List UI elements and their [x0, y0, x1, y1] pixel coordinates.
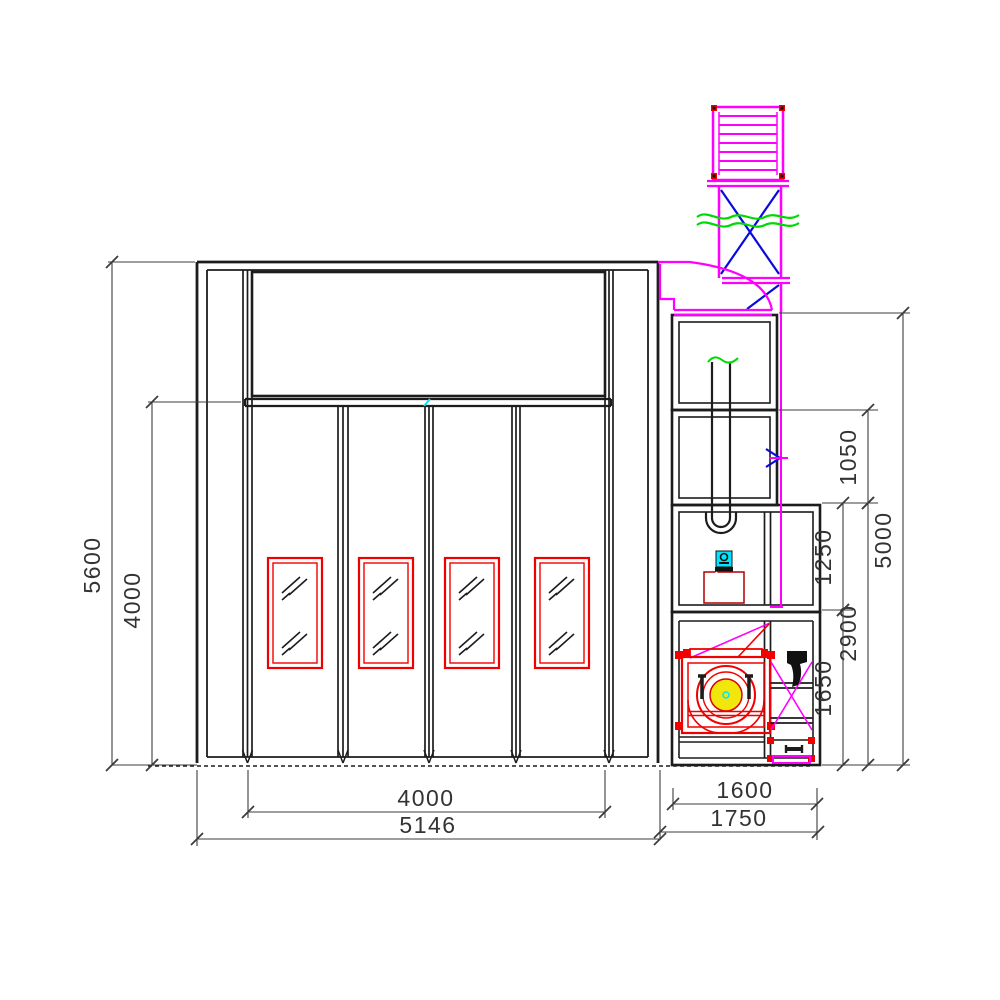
dim-lower-section: 2900	[835, 497, 874, 771]
motor-bay	[767, 651, 815, 763]
dim-burner-section: 1250	[810, 497, 849, 616]
base-strip	[773, 756, 810, 763]
transition-arc	[690, 262, 772, 310]
stack-louvers	[719, 116, 777, 170]
svg-text:4000: 4000	[397, 785, 454, 811]
header-beam	[245, 399, 611, 406]
burner-unit	[704, 551, 744, 603]
heat-exchanger-pipe	[706, 357, 738, 533]
dim-mech-room-width: 1750	[654, 805, 824, 838]
svg-text:1750: 1750	[710, 805, 767, 831]
dim-door-height: 4000	[119, 396, 158, 771]
dim-booth-width: 5146	[191, 812, 666, 845]
door-window-1	[268, 558, 322, 668]
svg-text:1250: 1250	[810, 528, 836, 585]
exhaust-duct	[697, 181, 799, 312]
spray-booth-elevation-drawing: 5600 4000 1050 1250 2900 1650	[0, 0, 1000, 1000]
duct-break-line	[697, 214, 799, 218]
drawing-canvas: 5600 4000 1050 1250 2900 1650	[0, 0, 1000, 1000]
exhaust-stack	[711, 105, 785, 180]
door-window-2	[359, 558, 413, 668]
door-window-3	[445, 558, 499, 668]
door-window-4	[535, 558, 589, 668]
fan-hub	[710, 679, 742, 711]
svg-text:1650: 1650	[810, 659, 836, 716]
svg-text:5600: 5600	[79, 536, 105, 593]
pipe-break-line	[708, 357, 738, 362]
svg-text:5146: 5146	[399, 812, 456, 838]
svg-text:5000: 5000	[870, 511, 896, 568]
machine-room	[672, 315, 820, 765]
burner-body	[704, 572, 744, 603]
dim-duct-section: 1050	[835, 404, 874, 509]
transom-panel	[252, 272, 605, 396]
door-frame-posts	[243, 270, 613, 757]
booth-frame	[197, 262, 658, 763]
fan-unit	[675, 623, 775, 742]
dim-booth-height: 5600	[79, 256, 118, 771]
svg-text:4000: 4000	[119, 571, 145, 628]
door-leaf-posts	[338, 406, 520, 757]
svg-text:1050: 1050	[835, 428, 861, 485]
dim-mech-total-height: 5000	[870, 307, 909, 771]
motor-silhouette	[787, 651, 807, 687]
svg-text:1600: 1600	[716, 777, 773, 803]
dim-fan-section: 1650	[810, 604, 849, 771]
